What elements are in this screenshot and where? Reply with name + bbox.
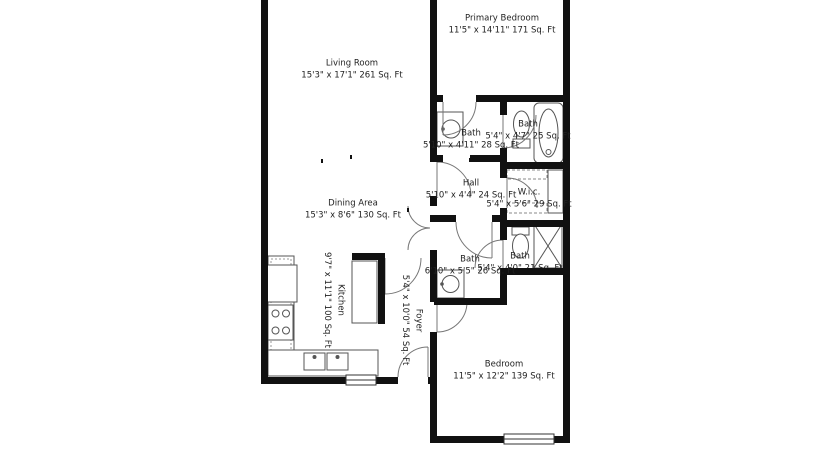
wall-segment <box>500 208 507 240</box>
wall-segment <box>500 148 507 178</box>
floor-plan: Living Room 15'3" x 17'1" 261 Sq. Ft Pri… <box>0 0 835 467</box>
room-label-wic: W.i.c. 5'4" x 5'6" 29 Sq. Ft <box>486 187 571 212</box>
wall-segment <box>500 95 507 115</box>
room-label-primary-bedroom: Primary Bedroom 11'5" x 14'11" 171 Sq. F… <box>449 13 556 38</box>
room-label-foyer: Foyer 5'4" x 10'0" 54 Sq. Ft <box>397 275 424 366</box>
room-label-kitchen: Kitchen 9'7" x 11'1" 100 Sq. Ft <box>319 252 346 348</box>
room-label-bedroom: Bedroom 11'5" x 12'2" 139 Sq. Ft <box>453 359 554 384</box>
wall-segment <box>430 215 456 222</box>
wall-segment <box>500 162 570 169</box>
room-label-bath-upper-right: Bath 5'4" x 4'7" 25 Sq. Ft <box>485 119 570 144</box>
walls-layer <box>0 0 835 467</box>
room-label-living-room: Living Room 15'3" x 17'1" 261 Sq. Ft <box>301 58 402 83</box>
wall-segment <box>430 95 443 102</box>
wall-segment <box>476 95 570 102</box>
wall-segment <box>500 220 570 227</box>
room-label-bath-lower-left: Bath 6'10" x 5'5" 26 Sq. Ft <box>425 254 516 279</box>
wall-segment <box>434 298 507 305</box>
wall-segment <box>430 155 443 162</box>
wall-segment <box>378 253 385 324</box>
wall-segment <box>261 377 398 384</box>
wall-segment <box>430 332 437 443</box>
wall-segment <box>261 0 268 384</box>
room-label-dining-area: Dining Area 15'3" x 8'6" 130 Sq. Ft <box>305 198 401 223</box>
